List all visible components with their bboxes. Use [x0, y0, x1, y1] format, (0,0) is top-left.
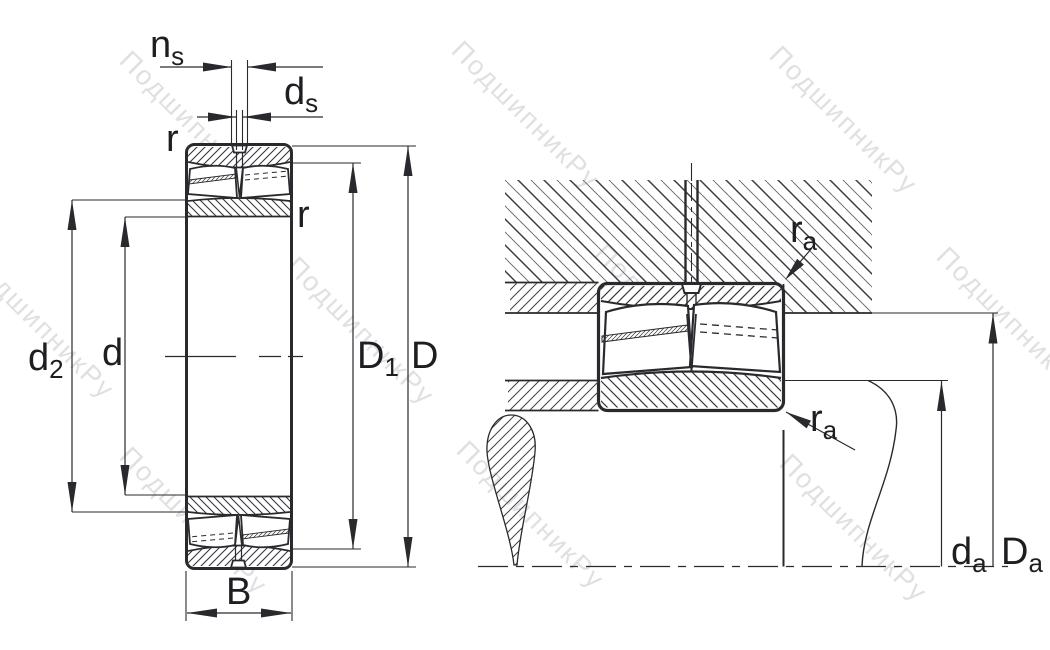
watermark-text: ПодшипникРу — [446, 35, 606, 195]
arrowhead — [404, 537, 413, 567]
watermark-text: ПодшипникРу — [931, 241, 1050, 401]
shaft-shoulder-section — [508, 381, 599, 410]
arrowhead — [68, 482, 77, 512]
arrowhead — [203, 63, 232, 72]
label-d: d — [102, 332, 123, 374]
mounting-view: ra ra da Da — [478, 163, 1043, 578]
label-r-top: r — [166, 118, 179, 160]
arrowhead — [349, 519, 358, 549]
lubrication-groove — [232, 146, 247, 153]
arrowhead — [261, 609, 291, 618]
front-view: ns ds r r d2 d — [28, 24, 438, 621]
annotation-ra-shaft: ra — [786, 398, 855, 450]
outer-ring-abutment-left — [505, 284, 599, 314]
arrowhead — [349, 163, 358, 193]
arrowhead — [404, 146, 413, 176]
label-Da: Da — [1001, 531, 1043, 578]
arrowhead — [786, 412, 811, 428]
technical-drawing: ПодшипникРу ПодшипникРу ПодшипникРу Подш… — [0, 0, 1050, 650]
arrowhead — [68, 200, 77, 230]
shaft-shoulder-left — [505, 381, 599, 411]
dimension-ns: ns — [150, 24, 323, 72]
label-ns: ns — [150, 24, 184, 71]
abutment-ring-section — [510, 284, 599, 314]
inner-ring-section — [188, 198, 290, 217]
lubrication-groove — [682, 284, 701, 293]
arrowhead — [187, 609, 217, 618]
bearing-section-mounted — [599, 284, 784, 411]
arrowhead — [248, 63, 277, 72]
arrowhead — [121, 217, 130, 247]
roller-right — [241, 166, 290, 198]
label-D: D — [411, 335, 438, 377]
dimension-B: B — [186, 571, 292, 621]
watermark-layer: ПодшипникРу ПодшипникРу ПодшипникРу Подш… — [0, 35, 1050, 608]
label-ra-shaft: ra — [810, 398, 838, 445]
label-ds: ds — [284, 71, 318, 118]
arrowhead — [121, 465, 130, 495]
bearing-drawing-canvas: ПодшипникРу ПодшипникРу ПодшипникРу Подш… — [0, 0, 1050, 650]
inner-ring-section — [601, 372, 781, 408]
arrowhead — [937, 381, 946, 411]
watermark-text: ПодшипникРу — [764, 40, 924, 200]
watermark-text: ПодшипникРу — [281, 251, 441, 411]
watermark-text: ПодшипникРу — [774, 448, 934, 608]
label-r-side: r — [297, 194, 310, 236]
label-B: B — [226, 571, 251, 613]
ns-ds-extension-lines — [232, 60, 248, 150]
dimension-ds: ds — [197, 71, 323, 122]
label-da: da — [951, 531, 987, 578]
